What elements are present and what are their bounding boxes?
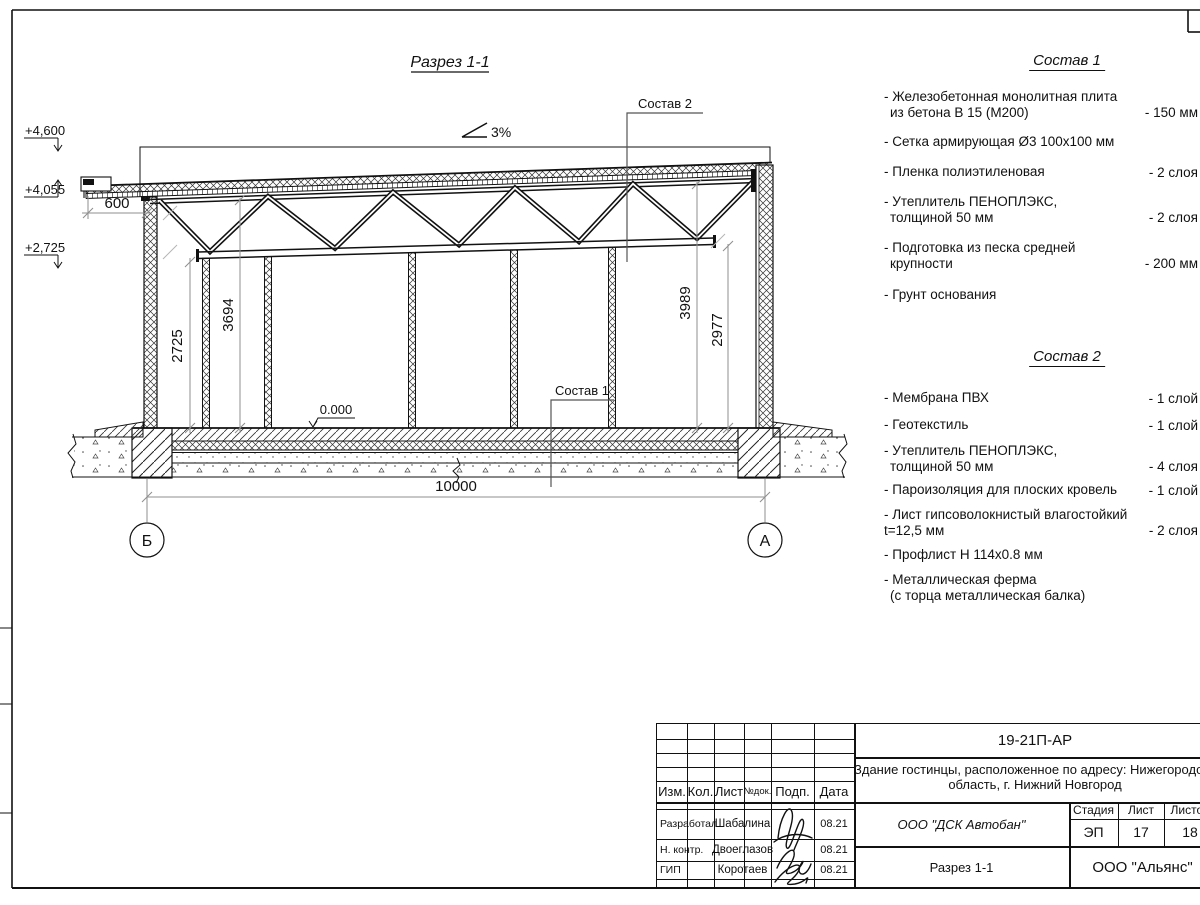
axis-markers: Б А	[130, 523, 782, 557]
signatures	[770, 796, 816, 890]
sheet-title: Разрез 1-1	[854, 846, 1069, 889]
svg-text:+4,055: +4,055	[25, 182, 65, 197]
dim-height-right-wall: 2977	[709, 313, 726, 346]
sheet-label: Лист	[1118, 802, 1164, 819]
slope-label: 3%	[491, 124, 511, 140]
svg-text:Состав 2: Состав 2	[638, 96, 692, 111]
floor-assembly	[72, 428, 845, 483]
row-date: 08.21	[814, 839, 854, 861]
col-header-data: Дата	[814, 781, 854, 802]
sheets-label: Листов	[1164, 802, 1200, 819]
section-title: Разрез 1-1	[410, 54, 489, 72]
col-header-izm: Изм.	[657, 781, 687, 802]
list-item: - Профлист Н 114х0.8 мм	[884, 547, 1200, 563]
signature-3	[775, 865, 808, 884]
list-item: - Мембрана ПВХ- 1 слой	[884, 390, 1200, 406]
truss-end-plate-right	[751, 169, 756, 192]
col-header-list: Лист	[714, 781, 744, 802]
wall-right	[756, 165, 773, 428]
stage-value: ЭП	[1069, 819, 1118, 846]
svg-text:+2,725: +2,725	[25, 240, 65, 255]
wall-left	[144, 197, 157, 428]
list-item: - Пленка полиэтиленовая- 2 слоя	[884, 164, 1200, 180]
svg-text:+4,600: +4,600	[25, 123, 65, 138]
section-title-text: Разрез 1-1	[410, 54, 489, 71]
svg-text:0.000: 0.000	[320, 402, 353, 417]
row-date: 08.21	[814, 861, 854, 879]
list-item: - Сетка армирующая Ø3 100х100 мм	[884, 134, 1200, 150]
slope-mark: 3%	[462, 123, 511, 140]
org-name: ООО "ДСК Автобан"	[854, 802, 1069, 846]
row-name: Коротаев	[714, 861, 771, 879]
row-role: Н. контр.	[657, 839, 714, 861]
drawing-sheet: Разрез 1-1 3% +4,600 +4,055 +2,725 0.000	[0, 0, 1200, 900]
dim-height-left: 3694	[220, 298, 237, 331]
row-role: ГИП	[657, 861, 714, 879]
frame-corner-box	[1188, 10, 1200, 32]
ground-right	[773, 422, 847, 478]
sheets-value: 18	[1164, 819, 1200, 846]
roof-assembly	[81, 163, 772, 199]
dim-span: 10000	[435, 478, 477, 495]
project-name: Здание гостинцы, расположенное по адресу…	[854, 757, 1200, 802]
row-name: Шабалина	[714, 809, 771, 839]
row-name: Двоеглазов	[714, 839, 771, 861]
list-item: - Железобетонная монолитная плитаиз бето…	[884, 89, 1200, 120]
sheet-value: 17	[1118, 819, 1164, 846]
list-item: - Грунт основания	[884, 287, 1200, 303]
truss-bottom-chord	[196, 235, 716, 262]
list-item: - Металлическая ферма(с торца металличес…	[884, 572, 1200, 603]
list-item: - Подготовка из песка среднейкрупности- …	[884, 240, 1200, 271]
dim-height-right: 3989	[677, 286, 694, 319]
list-item: - Утеплитель ПЕНОПЛЭКС,толщиной 50 мм- 4…	[884, 443, 1200, 474]
composition1-title: Состав 1	[1029, 52, 1105, 71]
doc-number: 19-21П-АР	[854, 724, 1200, 757]
row-role: Разработал	[657, 809, 714, 839]
dim-height-left-wall: 2725	[169, 329, 186, 362]
signature-2	[777, 850, 811, 874]
elevation-4055: +4,055	[24, 180, 65, 197]
elevation-4600: +4,600	[24, 123, 65, 151]
row-date: 08.21	[814, 809, 854, 839]
ground-left	[68, 422, 143, 478]
axis-right-label: А	[760, 533, 771, 550]
list-item: - Геотекстиль- 1 слой	[884, 417, 1200, 433]
axis-left-label: Б	[142, 533, 153, 550]
list-item: - Утеплитель ПЕНОПЛЭКС,толщиной 50 мм- 2…	[884, 194, 1200, 225]
composition2-title: Состав 2	[1029, 348, 1105, 367]
col-header-kol: Кол.	[687, 781, 714, 802]
elevation-2725: +2,725	[24, 240, 65, 268]
list-item: - Лист гипсоволокнистый влагостойкийt=12…	[884, 507, 1200, 538]
dim-overhang: 600	[104, 195, 129, 212]
signature-1	[774, 809, 812, 850]
svg-text:Состав 1: Состав 1	[555, 383, 609, 398]
company-name: ООО "Альянс"	[1069, 846, 1200, 889]
stage-label: Стадия	[1069, 802, 1118, 819]
list-item: - Пароизоляция для плоских кровель- 1 сл…	[884, 482, 1200, 498]
elevation-0000: 0.000	[309, 402, 355, 427]
title-block: Изм. Кол. Лист №док. Подп. Дата Разработ…	[656, 723, 1200, 888]
columns	[203, 247, 616, 428]
col-header-ndok: №док.	[744, 781, 771, 802]
